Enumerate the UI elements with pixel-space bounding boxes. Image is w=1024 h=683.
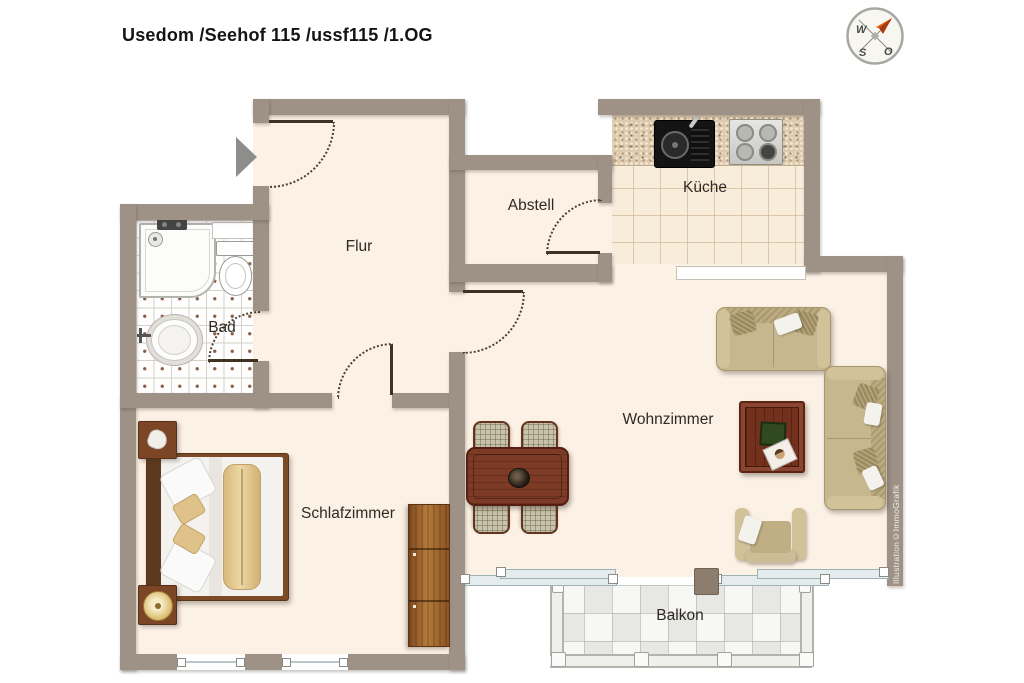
bowl [508, 468, 530, 488]
wall-segment [253, 99, 465, 115]
room-label-wohnzimmer: Wohnzimmer [622, 411, 713, 429]
room-label-flur: Flur [346, 238, 373, 256]
armchair [735, 504, 806, 563]
window-handle [177, 658, 186, 667]
coffee-table [739, 401, 805, 473]
kitchen-sink [654, 120, 715, 168]
window-handle [339, 658, 348, 667]
balcony-door-post [694, 568, 719, 595]
compass-south-label: S [859, 47, 867, 59]
washbasin [146, 314, 203, 366]
shower-drain [148, 232, 163, 247]
watermark: Illustration©ImmoGrafik [891, 424, 901, 584]
door-handle [496, 567, 506, 577]
sliding-door-panel [500, 569, 616, 579]
toilet-tank [216, 241, 255, 256]
kitchen-kneewall [676, 266, 806, 280]
compass-east-label: O [884, 46, 893, 58]
railing-post [799, 652, 814, 667]
balcony-railing [550, 654, 812, 668]
wall-segment [449, 352, 465, 670]
wall-segment [392, 393, 449, 408]
sofa-arm [817, 310, 830, 368]
wall-segment [120, 393, 332, 408]
wall-segment [804, 99, 820, 272]
wall-segment [120, 204, 136, 670]
sofa-two-seat [716, 307, 831, 371]
burner [759, 124, 777, 142]
shower [139, 223, 216, 298]
decor-item [145, 427, 169, 451]
wardrobe-handle [413, 553, 416, 556]
sofa-arm [827, 496, 883, 509]
wardrobe-handle [413, 605, 416, 608]
floor-plan: Usedom /Seehof 115 /ussf115 /1.OG W S O [0, 0, 1024, 683]
nightstand [138, 585, 177, 625]
wall-segment [253, 99, 269, 123]
sink-drainboard [691, 127, 709, 161]
door-handle [608, 574, 618, 584]
bed [146, 453, 289, 601]
kitchen-stove [729, 119, 783, 165]
bed-blanket [223, 464, 261, 590]
room-label-kueche: Küche [683, 179, 727, 197]
sofa-three-seat [824, 366, 886, 510]
room-label-bad: Bad [208, 319, 236, 337]
wardrobe [408, 504, 450, 647]
railing-post [717, 652, 732, 667]
page-title: Usedom /Seehof 115 /ussf115 /1.OG [122, 25, 433, 46]
wall-segment [449, 264, 612, 282]
room-label-schlafzimmer: Schlafzimmer [301, 505, 395, 523]
dining-chair [473, 503, 510, 534]
burner [736, 124, 754, 142]
wall-segment [598, 155, 612, 203]
table-lamp [143, 591, 173, 621]
door-handle [460, 574, 470, 584]
window [282, 654, 348, 670]
compass-west-label: W [856, 24, 868, 36]
dining-chair [521, 503, 558, 534]
compass-icon: W S O [845, 6, 905, 66]
sink-basin [661, 131, 689, 159]
wall-segment [449, 155, 612, 170]
shower-faucet [157, 219, 187, 230]
bed-headboard [147, 454, 161, 600]
burner [759, 143, 777, 161]
dining-table [466, 447, 569, 506]
wall-segment [120, 204, 269, 220]
room-label-abstell: Abstell [508, 197, 555, 215]
toilet-bowl [219, 256, 252, 296]
sofa-arm [717, 310, 730, 368]
window-handle [236, 658, 245, 667]
door-handle [879, 567, 889, 577]
window [177, 654, 245, 670]
railing-post [551, 652, 566, 667]
entrance-arrow-icon [236, 137, 257, 177]
nightstand [138, 421, 177, 459]
sofa-arm [827, 367, 883, 380]
door-handle [820, 574, 830, 584]
burner [736, 143, 754, 161]
sofa-pillow [729, 309, 758, 336]
window-handle [282, 658, 291, 667]
wall-segment [598, 253, 612, 282]
railing-post [634, 652, 649, 667]
room-label-balkon: Balkon [656, 607, 703, 625]
wall-segment [598, 99, 820, 115]
